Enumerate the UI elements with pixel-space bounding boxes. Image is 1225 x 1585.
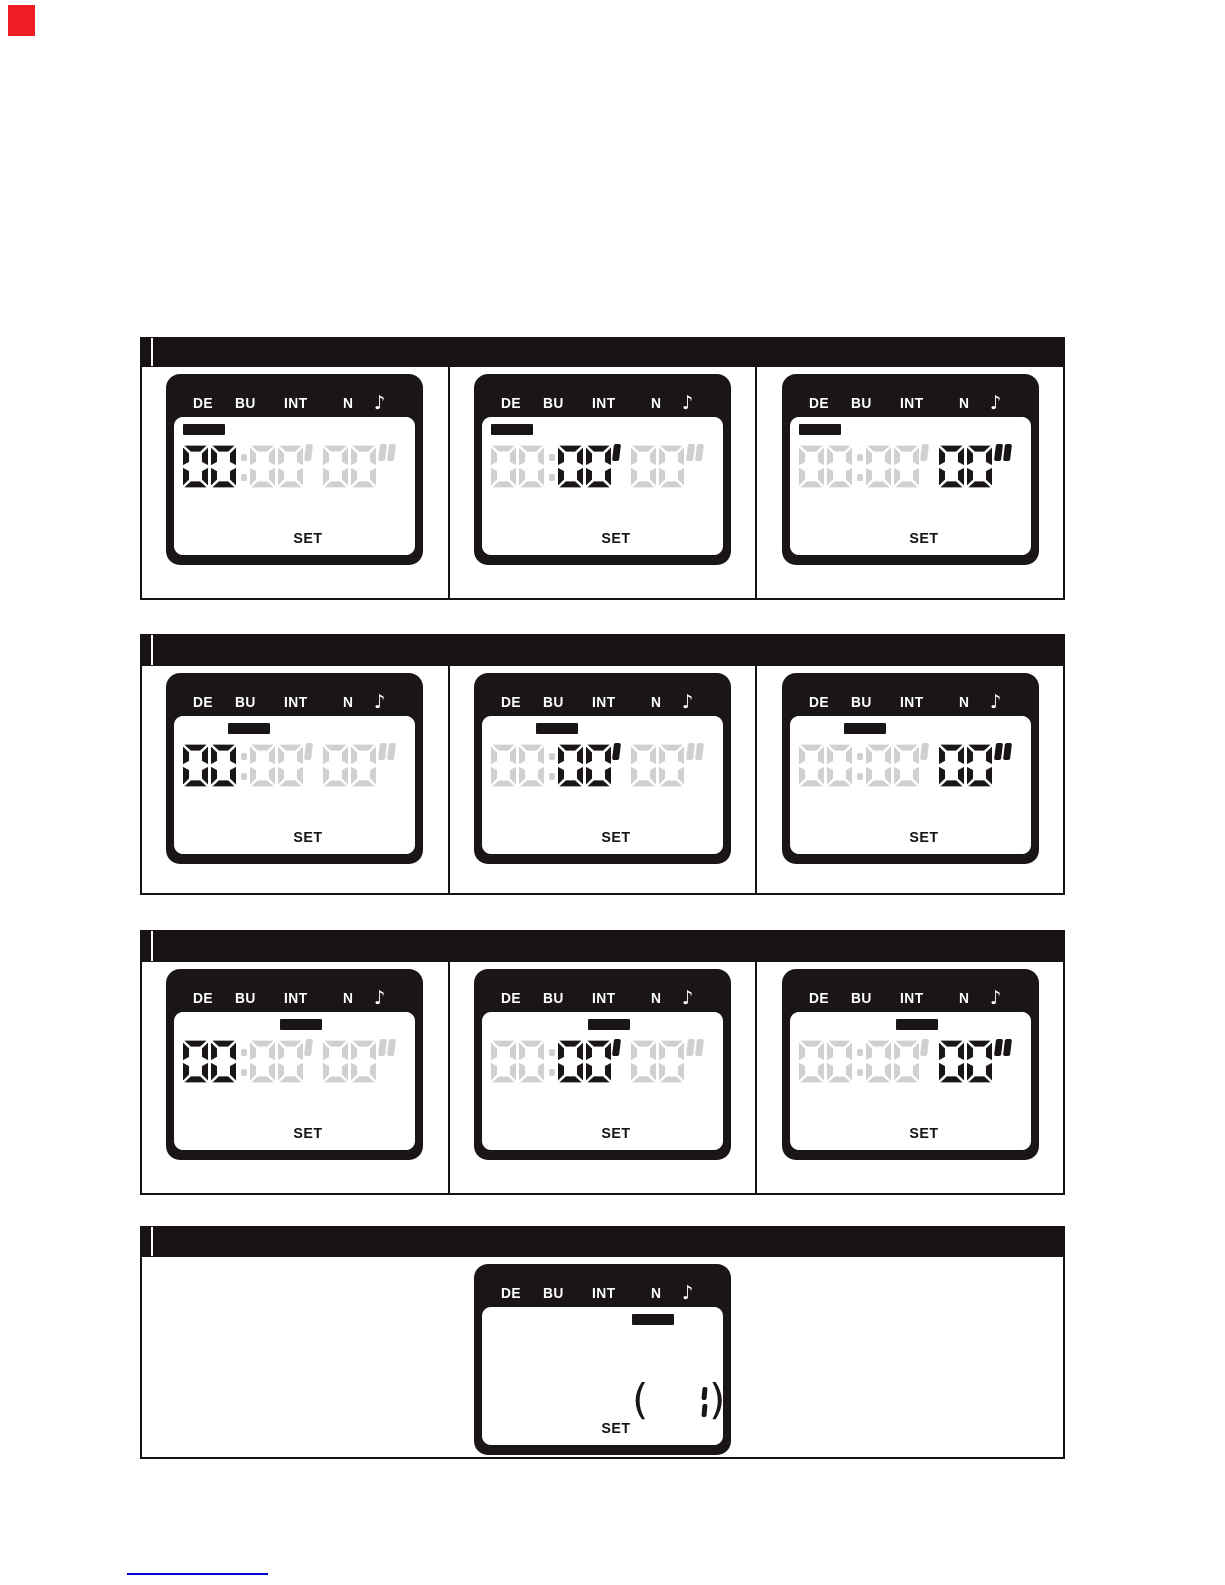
status-label-int: INT	[900, 990, 924, 1007]
seven-segment-digit	[827, 743, 852, 788]
colon-separator-dot	[549, 474, 555, 481]
seven-segment-digit	[183, 743, 208, 788]
status-label-bu: BU	[235, 990, 256, 1007]
colon-separator-dot	[549, 773, 555, 780]
status-label-de: DE	[501, 990, 521, 1007]
seven-segment-digit	[558, 444, 583, 489]
status-label-int: INT	[284, 395, 308, 412]
lcd-status-labels: DEBUINTN♪	[782, 694, 1039, 714]
status-label-bu: BU	[543, 1285, 564, 1302]
lcd-status-labels: DEBUINTN♪	[474, 990, 731, 1010]
cycle-close-bracket: )	[709, 1383, 725, 1417]
seven-segment-digit	[351, 1039, 376, 1084]
second-mark	[387, 1039, 396, 1056]
status-label-n: N	[959, 395, 969, 412]
status-label-int: INT	[900, 694, 924, 711]
second-mark	[686, 444, 695, 461]
lcd-status-labels: DEBUINTN♪	[782, 395, 1039, 415]
second-mark	[695, 444, 704, 461]
lcd-status-labels: DEBUINTN♪	[782, 990, 1039, 1010]
seven-segment-digit	[278, 1039, 303, 1084]
seven-segment-digit	[894, 1039, 919, 1084]
section-3-header-bar	[140, 930, 1065, 962]
second-mark	[695, 1039, 704, 1056]
seven-segment-digit	[866, 1039, 891, 1084]
lcd-panel: DEBUINTN♪SET	[166, 969, 423, 1160]
panel-cell: DEBUINTN♪SET	[142, 666, 450, 893]
digit-segment	[701, 1387, 707, 1400]
colon-separator-dot	[549, 753, 555, 760]
seven-segment-digit	[491, 444, 516, 489]
status-label-int: INT	[284, 694, 308, 711]
segment-indicator-bar	[228, 723, 270, 734]
status-label-int: INT	[592, 395, 616, 412]
colon-separator-dot	[549, 1069, 555, 1076]
note-icon: ♪	[990, 392, 1002, 414]
seven-segment-digit	[827, 444, 852, 489]
lcd-screen: SET	[174, 1012, 415, 1150]
set-label: SET	[895, 530, 952, 547]
minute-mark	[920, 743, 929, 760]
lcd-screen: SET	[174, 417, 415, 555]
lcd-screen: SET	[482, 1012, 723, 1150]
colon-separator-dot	[549, 454, 555, 461]
set-label: SET	[588, 1125, 645, 1142]
set-label: SET	[588, 829, 645, 846]
status-label-n: N	[651, 1285, 661, 1302]
colon-separator-dot	[241, 454, 247, 461]
lcd-status-labels: DEBUINTN♪	[166, 395, 423, 415]
panel-cell: DEBUINTN♪SET	[142, 962, 450, 1193]
panel-cell: DEBUINTN♪SET	[757, 666, 1063, 893]
minute-mark	[612, 444, 621, 461]
digit-segment	[701, 1404, 707, 1417]
seven-segment-digit	[894, 743, 919, 788]
status-label-int: INT	[900, 395, 924, 412]
seven-segment-digit	[659, 1039, 684, 1084]
panel-cell: DEBUINTN♪SET	[142, 367, 450, 598]
panel-cell: DEBUINTN♪SET	[450, 962, 758, 1193]
second-mark	[1003, 1039, 1012, 1056]
section-2-header-bar	[140, 634, 1065, 666]
seven-segment-digit	[939, 743, 964, 788]
seven-segment-digit	[586, 1039, 611, 1084]
set-label: SET	[280, 829, 337, 846]
lcd-screen: SET	[174, 716, 415, 854]
segment-indicator-bar	[536, 723, 578, 734]
status-label-bu: BU	[543, 395, 564, 412]
seven-segment-digit	[278, 743, 303, 788]
seven-segment-digit	[558, 743, 583, 788]
seven-segment-digit	[351, 444, 376, 489]
lcd-status-labels: DEBUINTN♪	[166, 694, 423, 714]
seven-segment-digit	[631, 1039, 656, 1084]
seven-segment-digit	[939, 444, 964, 489]
set-label: SET	[280, 1125, 337, 1142]
seven-segment-digit	[558, 1039, 583, 1084]
status-label-n: N	[343, 990, 353, 1007]
second-mark	[686, 1039, 695, 1056]
panel-cell: DEBUINTN♪()SET	[142, 1257, 1063, 1457]
seven-segment-digit	[519, 1039, 544, 1084]
note-icon: ♪	[682, 392, 694, 414]
lcd-screen: SET	[790, 417, 1031, 555]
seven-segment-digit	[250, 743, 275, 788]
lcd-panel: DEBUINTN♪SET	[782, 374, 1039, 565]
header-notch	[151, 1227, 153, 1256]
colon-separator-dot	[857, 753, 863, 760]
section-2-panel-row: DEBUINTN♪SETDEBUINTN♪SETDEBUINTN♪SET	[140, 666, 1065, 895]
status-label-n: N	[343, 694, 353, 711]
note-icon: ♪	[374, 691, 386, 713]
minute-mark	[304, 444, 313, 461]
seven-segment-digit	[967, 444, 992, 489]
status-label-de: DE	[809, 990, 829, 1007]
lcd-panel: DEBUINTN♪SET	[782, 969, 1039, 1160]
minute-mark	[304, 743, 313, 760]
lcd-status-labels: DEBUINTN♪	[474, 1285, 731, 1305]
segment-indicator-bar	[588, 1019, 630, 1030]
segment-indicator-bar	[896, 1019, 938, 1030]
minute-mark	[920, 1039, 929, 1056]
section-1: DEBUINTN♪SETDEBUINTN♪SETDEBUINTN♪SET	[140, 337, 1065, 600]
lcd-screen: SET	[790, 1012, 1031, 1150]
seven-segment-digit	[894, 444, 919, 489]
header-notch	[151, 931, 153, 961]
status-label-n: N	[651, 990, 661, 1007]
footer-link-underline[interactable]	[127, 1573, 268, 1575]
seven-segment-digit	[866, 444, 891, 489]
colon-separator-dot	[857, 1069, 863, 1076]
seven-segment-digit	[323, 743, 348, 788]
segment-indicator-bar	[280, 1019, 322, 1030]
lcd-panel: DEBUINTN♪SET	[782, 673, 1039, 864]
colon-separator-dot	[241, 753, 247, 760]
seven-segment-digit	[659, 743, 684, 788]
status-label-de: DE	[809, 395, 829, 412]
set-label: SET	[895, 1125, 952, 1142]
set-label: SET	[280, 530, 337, 547]
seven-segment-digit	[586, 743, 611, 788]
second-mark	[686, 743, 695, 760]
section-1-header-bar	[140, 337, 1065, 367]
status-label-bu: BU	[851, 694, 872, 711]
note-icon: ♪	[990, 987, 1002, 1009]
status-label-de: DE	[809, 694, 829, 711]
lcd-screen: SET	[482, 417, 723, 555]
seven-segment-digit	[491, 743, 516, 788]
section-3: DEBUINTN♪SETDEBUINTN♪SETDEBUINTN♪SET	[140, 930, 1065, 1195]
lcd-status-labels: DEBUINTN♪	[474, 694, 731, 714]
seven-segment-digit	[211, 1039, 236, 1084]
status-label-de: DE	[501, 1285, 521, 1302]
seven-segment-digit	[967, 1039, 992, 1084]
colon-separator-dot	[241, 474, 247, 481]
cycle-count-digit	[701, 1387, 709, 1417]
status-label-bu: BU	[235, 395, 256, 412]
lcd-panel: DEBUINTN♪SET	[474, 374, 731, 565]
cycle-open-bracket: (	[632, 1383, 648, 1417]
status-label-de: DE	[193, 395, 213, 412]
seven-segment-digit	[183, 444, 208, 489]
note-icon: ♪	[374, 392, 386, 414]
second-mark	[1003, 743, 1012, 760]
lcd-screen: SET	[790, 716, 1031, 854]
lcd-panel: DEBUINTN♪SET	[166, 673, 423, 864]
colon-separator-dot	[857, 773, 863, 780]
status-label-int: INT	[592, 1285, 616, 1302]
section-1-panel-row: DEBUINTN♪SETDEBUINTN♪SETDEBUINTN♪SET	[140, 367, 1065, 600]
seven-segment-digit	[631, 444, 656, 489]
seven-segment-digit	[211, 743, 236, 788]
status-label-int: INT	[284, 990, 308, 1007]
second-mark	[378, 743, 387, 760]
seven-segment-digit	[586, 444, 611, 489]
second-mark	[1003, 444, 1012, 461]
panel-cell: DEBUINTN♪SET	[450, 666, 758, 893]
second-mark	[994, 444, 1003, 461]
segment-indicator-bar	[632, 1314, 674, 1325]
lcd-panel: DEBUINTN♪()SET	[474, 1264, 731, 1455]
lcd-status-labels: DEBUINTN♪	[474, 395, 731, 415]
note-icon: ♪	[374, 987, 386, 1009]
section-3-panel-row: DEBUINTN♪SETDEBUINTN♪SETDEBUINTN♪SET	[140, 962, 1065, 1195]
seven-segment-digit	[323, 1039, 348, 1084]
seven-segment-digit	[799, 444, 824, 489]
lcd-screen: SET	[482, 716, 723, 854]
seven-segment-digit	[519, 444, 544, 489]
colon-separator-dot	[857, 1049, 863, 1056]
seven-segment-digit	[659, 444, 684, 489]
seven-segment-digit	[351, 743, 376, 788]
second-mark	[378, 1039, 387, 1056]
seven-segment-digit	[278, 444, 303, 489]
seven-segment-digit	[939, 1039, 964, 1084]
colon-separator-dot	[241, 773, 247, 780]
seven-segment-digit	[250, 1039, 275, 1084]
set-label: SET	[588, 1420, 645, 1437]
seven-segment-digit	[631, 743, 656, 788]
minute-mark	[612, 1039, 621, 1056]
segment-indicator-bar	[799, 424, 841, 435]
seven-segment-digit	[799, 1039, 824, 1084]
status-label-bu: BU	[543, 694, 564, 711]
page: DEBUINTN♪SETDEBUINTN♪SETDEBUINTN♪SET DEB…	[0, 0, 1225, 1585]
status-label-n: N	[651, 694, 661, 711]
seven-segment-digit	[323, 444, 348, 489]
status-label-bu: BU	[851, 990, 872, 1007]
segment-indicator-bar	[844, 723, 886, 734]
seven-segment-digit	[491, 1039, 516, 1084]
lcd-panel: DEBUINTN♪SET	[166, 374, 423, 565]
page-corner-marker	[8, 5, 35, 36]
minute-mark	[612, 743, 621, 760]
colon-separator-dot	[857, 454, 863, 461]
second-mark	[378, 444, 387, 461]
second-mark	[387, 743, 396, 760]
second-mark	[994, 743, 1003, 760]
lcd-panel: DEBUINTN♪SET	[474, 969, 731, 1160]
lcd-screen: ()SET	[482, 1307, 723, 1445]
seven-segment-digit	[866, 743, 891, 788]
panel-cell: DEBUINTN♪SET	[757, 367, 1063, 598]
seven-segment-digit	[967, 743, 992, 788]
section-2: DEBUINTN♪SETDEBUINTN♪SETDEBUINTN♪SET	[140, 634, 1065, 895]
status-label-n: N	[959, 990, 969, 1007]
set-label: SET	[588, 530, 645, 547]
segment-indicator-bar	[491, 424, 533, 435]
section-4: DEBUINTN♪()SET	[140, 1226, 1065, 1459]
note-icon: ♪	[990, 691, 1002, 713]
panel-cell: DEBUINTN♪SET	[757, 962, 1063, 1193]
set-label: SET	[895, 829, 952, 846]
status-label-bu: BU	[851, 395, 872, 412]
second-mark	[695, 743, 704, 760]
seven-segment-digit	[799, 743, 824, 788]
status-label-bu: BU	[543, 990, 564, 1007]
section-4-panel-row: DEBUINTN♪()SET	[140, 1257, 1065, 1459]
seven-segment-digit	[519, 743, 544, 788]
header-notch	[151, 635, 153, 665]
second-mark	[994, 1039, 1003, 1056]
colon-separator-dot	[241, 1069, 247, 1076]
lcd-panel: DEBUINTN♪SET	[474, 673, 731, 864]
second-mark	[387, 444, 396, 461]
minute-mark	[304, 1039, 313, 1056]
note-icon: ♪	[682, 1282, 694, 1304]
status-label-n: N	[343, 395, 353, 412]
note-icon: ♪	[682, 691, 694, 713]
seven-segment-digit	[211, 444, 236, 489]
minute-mark	[920, 444, 929, 461]
segment-indicator-bar	[183, 424, 225, 435]
status-label-de: DE	[193, 990, 213, 1007]
colon-separator-dot	[241, 1049, 247, 1056]
section-4-header-bar	[140, 1226, 1065, 1257]
status-label-de: DE	[193, 694, 213, 711]
lcd-status-labels: DEBUINTN♪	[166, 990, 423, 1010]
seven-segment-digit	[827, 1039, 852, 1084]
seven-segment-digit	[250, 444, 275, 489]
status-label-de: DE	[501, 694, 521, 711]
status-label-int: INT	[592, 990, 616, 1007]
status-label-bu: BU	[235, 694, 256, 711]
colon-separator-dot	[857, 474, 863, 481]
status-label-n: N	[651, 395, 661, 412]
status-label-de: DE	[501, 395, 521, 412]
colon-separator-dot	[549, 1049, 555, 1056]
seven-segment-digit	[183, 1039, 208, 1084]
panel-cell: DEBUINTN♪SET	[450, 367, 758, 598]
header-notch	[151, 338, 153, 366]
status-label-int: INT	[592, 694, 616, 711]
note-icon: ♪	[682, 987, 694, 1009]
status-label-n: N	[959, 694, 969, 711]
